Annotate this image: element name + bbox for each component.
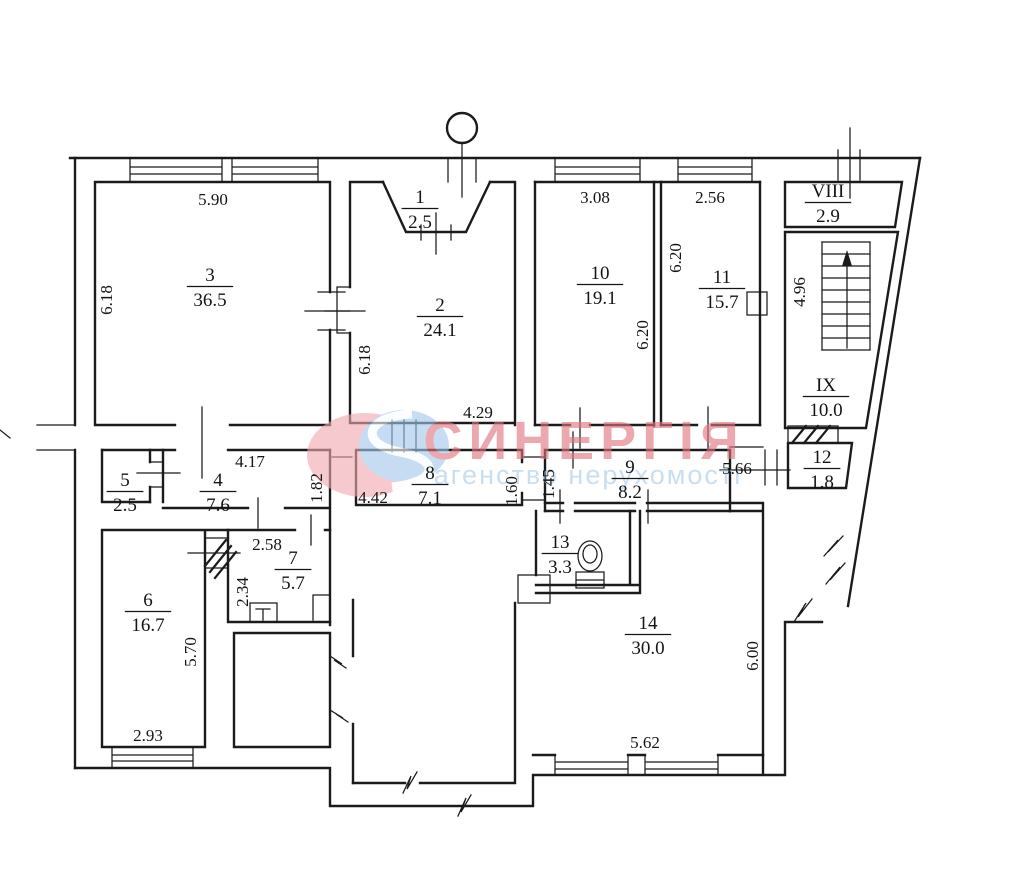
dimension-label: 1.82 — [307, 473, 326, 503]
room-area: 7.6 — [206, 495, 230, 516]
room-number: 3 — [205, 265, 215, 286]
room-area: 24.1 — [423, 320, 456, 341]
dimension-label: 5.70 — [181, 637, 200, 667]
room-area: 30.0 — [631, 638, 664, 659]
room-label: 616.7 — [125, 590, 171, 636]
room-number: VIII — [812, 181, 845, 202]
room-number: IX — [816, 375, 836, 396]
dimension-label: 6.00 — [743, 641, 762, 671]
dimension-label: 3.08 — [580, 188, 610, 207]
room-area: 16.7 — [131, 615, 164, 636]
room-area: 5.7 — [281, 573, 305, 594]
room-number: 7 — [288, 548, 298, 569]
stairs-up-arrow — [842, 250, 852, 266]
room-number: 5 — [120, 470, 130, 491]
floor-plan-page: СИНЕРГІЯ агенство нерухомості 12.5224.13… — [0, 0, 1024, 889]
room-label: 133.3 — [542, 532, 579, 578]
floor-plan-drawing: СИНЕРГІЯ агенство нерухомості 12.5224.13… — [0, 0, 1024, 889]
room-area: 8.2 — [618, 482, 642, 503]
room-area: 1.8 — [810, 472, 834, 493]
room-number: 14 — [639, 613, 659, 634]
dimension-label: 6.18 — [355, 345, 374, 375]
dimension-label: 6.20 — [666, 243, 685, 273]
room-label: 1430.0 — [625, 613, 671, 659]
room-label: IX10.0 — [803, 375, 849, 421]
room-number: 12 — [813, 447, 832, 468]
room-area: 7.1 — [418, 488, 442, 509]
room-number: 1 — [415, 187, 425, 208]
dimension-label: 5.66 — [722, 459, 752, 478]
dimension-label: 2.56 — [695, 188, 725, 207]
hatched-wall-2 — [188, 538, 240, 578]
room-number: 4 — [213, 470, 223, 491]
dimension-label: 4.17 — [235, 452, 265, 471]
room-10-11-walls — [535, 182, 767, 450]
dimension-label: 4.42 — [358, 488, 388, 507]
dimension-label: 2.93 — [133, 726, 163, 745]
watermark: СИНЕРГІЯ агенство нерухомості — [307, 410, 745, 497]
room-area: 2.5 — [113, 495, 137, 516]
room-number: 10 — [591, 263, 610, 284]
dimension-label: 5.90 — [198, 190, 228, 209]
room-label: 336.5 — [187, 265, 233, 311]
room-number: 2 — [435, 295, 445, 316]
central-room-walls — [234, 575, 550, 816]
room-label: 121.8 — [804, 447, 841, 493]
dimension-label: 1.45 — [539, 469, 558, 499]
room-label: 52.5 — [107, 470, 144, 516]
chimney-icon — [447, 113, 477, 197]
stairs-icon — [822, 242, 870, 350]
room-label: 75.7 — [275, 548, 312, 594]
room-area: 15.7 — [705, 292, 738, 313]
room-number: 9 — [625, 457, 635, 478]
room-number: 6 — [143, 590, 153, 611]
dimension-label: 6.20 — [633, 320, 652, 350]
room-area: 2.5 — [408, 212, 432, 233]
room-number: 13 — [551, 532, 570, 553]
toilet-icon — [576, 541, 604, 588]
wall-break-marks — [794, 536, 845, 622]
dimension-label: 4.29 — [463, 403, 493, 422]
dimension-label: 6.18 — [97, 285, 116, 315]
dimension-label: 4.96 — [790, 277, 809, 307]
room-area: 10.0 — [809, 400, 842, 421]
room-number: 11 — [713, 267, 731, 288]
dimension-label: 1.60 — [502, 476, 521, 506]
dimension-label: 5.62 — [630, 733, 660, 752]
room-number: 8 — [425, 463, 435, 484]
room-label: 12.5 — [402, 187, 439, 233]
room-area: 19.1 — [583, 288, 616, 309]
room-area: 2.9 — [816, 206, 840, 227]
room-label: VIII2.9 — [805, 181, 851, 227]
room-label: 224.1 — [417, 295, 463, 341]
room-area: 36.5 — [193, 290, 226, 311]
room-area: 3.3 — [548, 557, 572, 578]
dimension-label: 2.34 — [233, 577, 252, 607]
dimension-label: 2.58 — [252, 535, 282, 554]
room-label: 1115.7 — [699, 267, 745, 313]
watermark-tagline: агенство нерухомості — [434, 460, 742, 490]
room-label: 1019.1 — [577, 263, 623, 309]
